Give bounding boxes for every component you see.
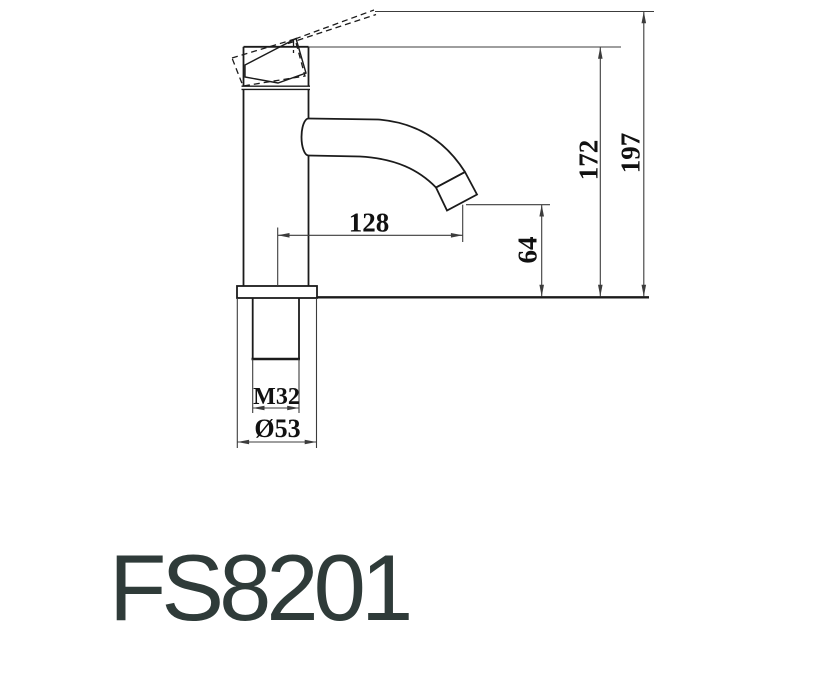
dimension-label-64: 64: [513, 237, 543, 264]
dimension-label-197: 197: [616, 133, 646, 174]
drawing-sheet: 197 172 64 128 M32 Ø53 FS8201: [0, 0, 815, 699]
product-code: FS8201: [109, 535, 409, 640]
dimension-label-128: 128: [349, 208, 390, 238]
handle-raised-dashed: [232, 10, 376, 86]
lever-raised-lower-line: [288, 15, 376, 44]
lever-raised-upper-line: [295, 10, 374, 39]
dimension-label-m32: M32: [253, 384, 300, 410]
base-flange: [237, 286, 317, 298]
dimension-label-d53: Ø53: [254, 414, 300, 443]
dimension-outlet-height: 64: [466, 205, 550, 297]
spout-top-curve: [309, 119, 466, 173]
faucet-technical-drawing: 197 172 64 128 M32 Ø53 FS8201: [0, 0, 815, 699]
spout-bottom-curve: [309, 156, 437, 188]
faucet-outline: [237, 47, 649, 359]
spout-back-cap: [302, 119, 309, 156]
dimension-spout-reach: 128: [278, 205, 463, 286]
dimension-base-diameter: Ø53: [237, 298, 316, 448]
dimension-thread: M32: [253, 359, 300, 413]
dimension-label-172: 172: [574, 140, 604, 181]
